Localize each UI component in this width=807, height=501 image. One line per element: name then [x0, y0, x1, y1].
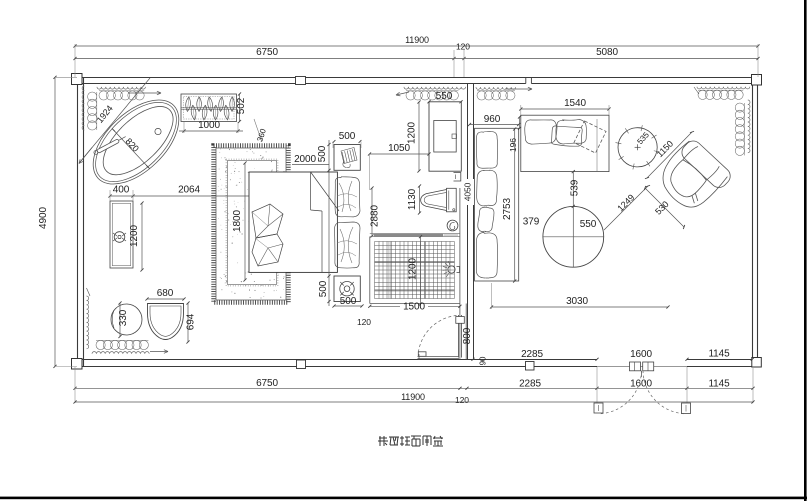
svg-text:196: 196 — [508, 138, 518, 152]
svg-text:500: 500 — [318, 280, 329, 297]
svg-text:2064: 2064 — [178, 185, 200, 196]
svg-text:1540: 1540 — [564, 98, 586, 109]
svg-text:11900: 11900 — [405, 35, 429, 45]
svg-text:6750: 6750 — [256, 47, 278, 58]
svg-text:379: 379 — [523, 217, 540, 228]
svg-text:1600: 1600 — [630, 349, 652, 360]
svg-text:6750: 6750 — [256, 378, 278, 389]
svg-text:2285: 2285 — [519, 379, 541, 390]
svg-text:120: 120 — [455, 395, 469, 405]
svg-text:500: 500 — [340, 296, 357, 307]
svg-text:800: 800 — [462, 327, 473, 344]
svg-text:550: 550 — [436, 91, 453, 102]
svg-text:680: 680 — [157, 288, 174, 299]
svg-text:2000: 2000 — [294, 154, 316, 165]
svg-text:1050: 1050 — [388, 143, 410, 154]
svg-text:3030: 3030 — [566, 296, 588, 307]
svg-text:120: 120 — [357, 317, 371, 327]
svg-text:694: 694 — [186, 313, 197, 330]
svg-text:500: 500 — [317, 145, 328, 162]
svg-text:1130: 1130 — [407, 188, 418, 210]
svg-text:960: 960 — [484, 114, 501, 125]
svg-text:1800: 1800 — [232, 210, 243, 232]
svg-text:502: 502 — [236, 97, 247, 114]
svg-text:5080: 5080 — [596, 47, 618, 58]
svg-text:2880: 2880 — [370, 205, 381, 227]
svg-text:1200: 1200 — [407, 122, 418, 144]
svg-text:1200: 1200 — [408, 258, 419, 280]
svg-text:120: 120 — [456, 42, 470, 52]
svg-text:330: 330 — [118, 309, 129, 326]
svg-text:4900: 4900 — [38, 207, 49, 229]
svg-text:4050: 4050 — [463, 182, 473, 201]
svg-text:400: 400 — [113, 185, 130, 196]
svg-text:2285: 2285 — [521, 349, 543, 360]
svg-text:1500: 1500 — [403, 301, 425, 312]
svg-text:11900: 11900 — [401, 392, 425, 402]
svg-text:539: 539 — [570, 179, 581, 196]
svg-text:1145: 1145 — [708, 349, 730, 360]
svg-text:1000: 1000 — [198, 120, 220, 131]
svg-text:500: 500 — [339, 131, 356, 142]
svg-text:1200: 1200 — [129, 225, 140, 247]
svg-text:90: 90 — [479, 356, 488, 365]
svg-text:1145: 1145 — [708, 379, 730, 390]
svg-text:2753: 2753 — [502, 198, 513, 220]
svg-text:550: 550 — [580, 219, 597, 230]
svg-text:1600: 1600 — [630, 379, 652, 390]
